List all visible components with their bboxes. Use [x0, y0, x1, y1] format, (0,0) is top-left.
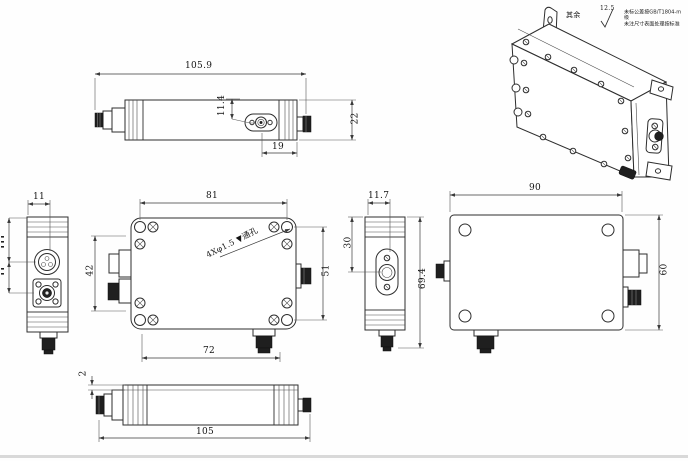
- dim-back-height: 60: [661, 263, 670, 275]
- surface-roughness-value: 12.5: [600, 6, 615, 12]
- top-view-right-connector: [297, 116, 311, 132]
- left-view-circular-connector: [35, 250, 60, 275]
- dim-bottom-lip: 2: [80, 370, 89, 376]
- front-view-bottom-connector: [253, 329, 275, 353]
- isometric-view: [510, 7, 673, 180]
- dim-mid-overall-height: 69.4: [419, 268, 428, 289]
- engineering-drawing-sheet: 105.9 22 11.4 19 11 81 72 51 42 4Xφ1.5 ▼…: [0, 0, 688, 461]
- dim-front-hole-pitch-h: 81: [206, 192, 218, 201]
- back-view-left-connector: [436, 261, 450, 281]
- mid-view-bottom-connector: [379, 330, 395, 351]
- dim-mid-top-to-port: 30: [345, 236, 354, 248]
- left-view-clipped-dim-text: [1, 236, 4, 275]
- front-view-right-connector: [296, 264, 311, 288]
- left-view-sma-connector: [33, 279, 61, 307]
- tolerance-note: 未标公差按GB/T1804-m级 未注尺寸表面处理按标准: [624, 10, 683, 27]
- dim-front-hole-pitch-v: 51: [323, 264, 332, 276]
- page-edge-shadow: [0, 455, 688, 458]
- front-view-left-connectors: [108, 250, 131, 303]
- dim-top-port-to-end: 19: [272, 143, 284, 152]
- tolerance-note-line1: 未标公差按GB/T1804-m级: [624, 10, 683, 22]
- dim-top-body-height: 22: [352, 112, 361, 124]
- dim-front-connector-span: 42: [87, 264, 96, 276]
- dim-top-port-offset: 11.4: [218, 95, 227, 116]
- dim-bottom-overall-length: 105: [196, 428, 214, 437]
- top-view-flange-port: [245, 114, 277, 131]
- front-view: [91, 199, 327, 362]
- back-view: [436, 191, 663, 353]
- dim-mid-edge-to-port: 11.7: [368, 192, 389, 201]
- mid-side-view: [348, 199, 424, 351]
- dim-top-overall-length: 105.9: [185, 62, 212, 71]
- top-view-left-connector: [95, 108, 125, 132]
- back-view-right-connectors: [623, 250, 647, 307]
- dim-back-width: 90: [529, 184, 541, 193]
- dim-front-port-pitch: 72: [203, 347, 215, 356]
- back-view-bottom-connector: [474, 330, 498, 353]
- drawing-linework: [0, 0, 688, 461]
- bottom-view-left-connector: [96, 390, 123, 420]
- surface-finish-rest-label: 其余: [566, 12, 581, 19]
- bottom-view-right-connector: [298, 398, 311, 412]
- left-side-view: [1, 200, 68, 354]
- dim-left-edge-to-port: 11: [33, 193, 45, 202]
- tolerance-note-line2: 未注尺寸表面处理按标准: [624, 22, 683, 28]
- left-view-bottom-connector: [40, 332, 57, 354]
